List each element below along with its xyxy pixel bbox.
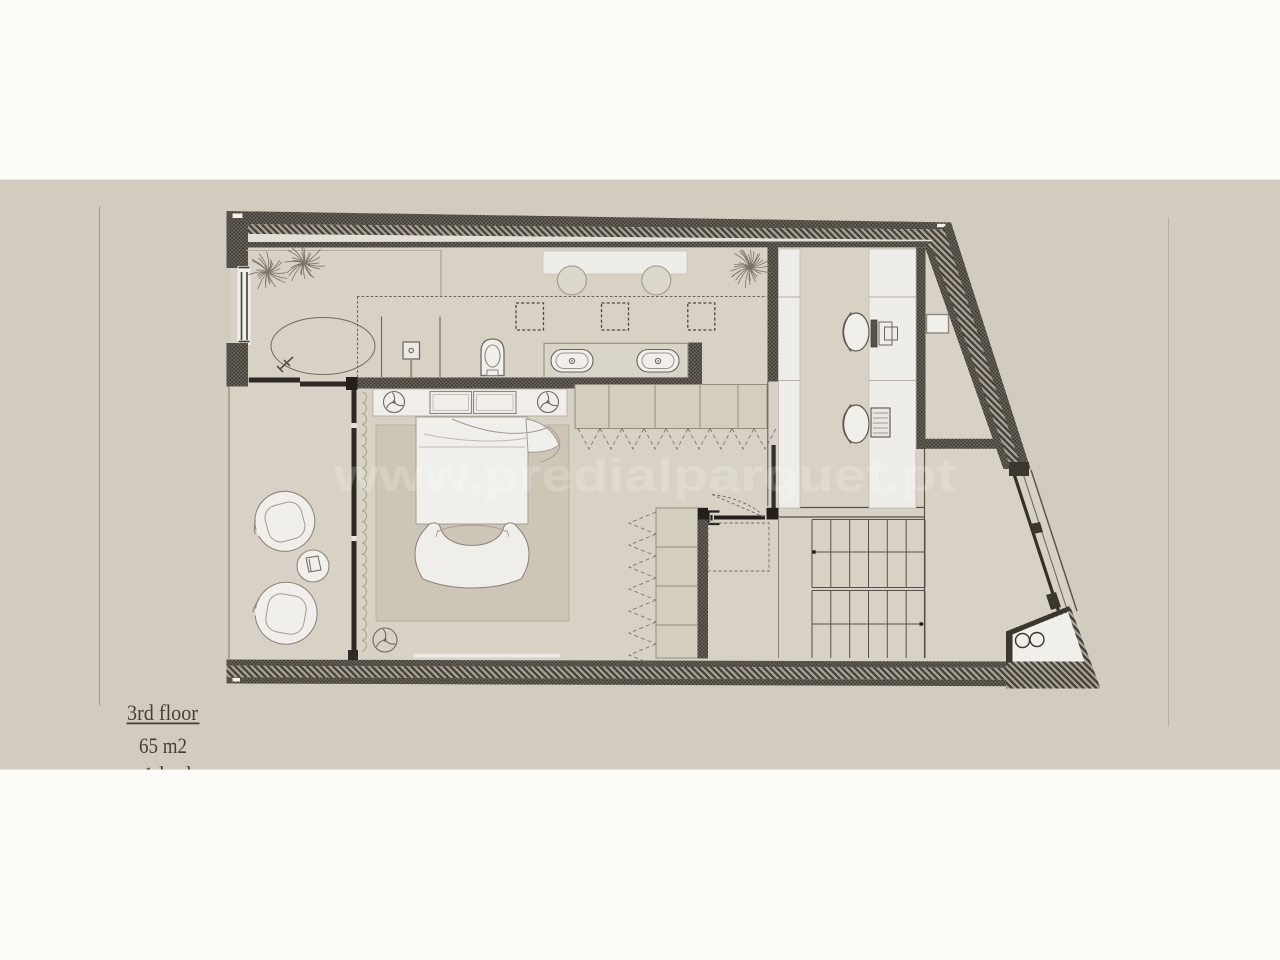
svg-text:www.predialparquet.pt: www.predialparquet.pt — [333, 449, 956, 501]
svg-text:1 bedroom: 1 bedroom — [143, 762, 238, 787]
svg-text:3rd floor: 3rd floor — [127, 700, 199, 725]
svg-text:65 m2: 65 m2 — [139, 733, 187, 758]
